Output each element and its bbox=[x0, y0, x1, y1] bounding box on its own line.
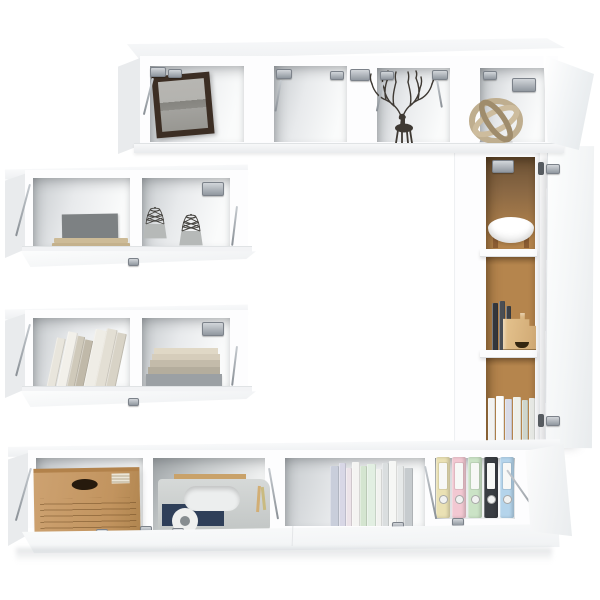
door-catch-icon bbox=[128, 398, 139, 406]
stacked-book bbox=[148, 367, 220, 374]
hinge-bracket-icon bbox=[492, 160, 514, 173]
wire-basket-ornament-icon bbox=[176, 209, 206, 247]
hinge-bracket-icon bbox=[276, 69, 292, 79]
hinge-bracket-icon bbox=[150, 67, 166, 77]
box-score-lines bbox=[40, 497, 137, 531]
hinge-bracket-icon bbox=[380, 71, 394, 80]
ring-binder bbox=[436, 457, 450, 518]
book-spine bbox=[352, 462, 360, 526]
cabinet-shelf bbox=[480, 249, 537, 257]
ring-binder bbox=[452, 457, 466, 518]
ring-binder bbox=[484, 457, 498, 518]
book-spine bbox=[496, 396, 504, 443]
hinge-icon bbox=[538, 162, 544, 175]
grey-toy-box bbox=[158, 474, 270, 532]
hinge-icon bbox=[538, 414, 544, 427]
book-spine bbox=[513, 397, 521, 443]
cabinet-shelf bbox=[480, 350, 537, 358]
book-spine bbox=[367, 464, 376, 526]
ring-binder bbox=[468, 457, 482, 518]
deer-antler-ornament-icon bbox=[358, 70, 446, 146]
hinge-icon bbox=[546, 164, 560, 174]
book-spine bbox=[488, 398, 495, 443]
shelf-shadow bbox=[486, 357, 535, 366]
floor-shadow bbox=[16, 548, 552, 562]
book-spine bbox=[529, 398, 535, 443]
book-spine bbox=[330, 466, 339, 526]
book-spine bbox=[397, 466, 404, 526]
cabinet-bottom-edge bbox=[134, 143, 564, 153]
toy-box-handle-hole bbox=[184, 486, 240, 511]
hinge-bracket-icon bbox=[350, 69, 370, 81]
product-photo-canvas bbox=[0, 0, 600, 600]
picture-frame bbox=[151, 72, 214, 139]
hinge-bracket-icon bbox=[512, 78, 536, 92]
tall-cabinet-open-door bbox=[545, 146, 594, 448]
book-spine bbox=[492, 303, 498, 350]
book-spine bbox=[360, 466, 367, 526]
box-label bbox=[112, 473, 130, 483]
ring-binder bbox=[500, 457, 514, 518]
wire-basket-ornament-icon bbox=[140, 196, 170, 246]
cabinet-left-face bbox=[118, 58, 140, 154]
leaning-books bbox=[46, 328, 136, 390]
hinge-bracket-icon bbox=[432, 70, 448, 80]
book-spine bbox=[339, 463, 346, 526]
hinge-bracket-icon bbox=[202, 182, 224, 196]
top-cabinet-open-door bbox=[540, 50, 594, 150]
pastel-book-row bbox=[330, 460, 422, 526]
hinge-bracket-icon bbox=[330, 71, 344, 80]
hinge-bracket-icon bbox=[168, 69, 182, 78]
hinge-bracket-icon bbox=[202, 322, 224, 336]
book-spine bbox=[522, 400, 528, 443]
wooden-sphere-ornament-icon bbox=[468, 98, 524, 146]
stacked-book bbox=[146, 374, 222, 386]
door-catch-icon bbox=[128, 258, 139, 266]
book-spine bbox=[404, 468, 413, 526]
cardboard-storage-box bbox=[33, 467, 140, 537]
book-spine bbox=[389, 461, 397, 526]
hinge-icon bbox=[546, 416, 560, 426]
ring-binder-row bbox=[436, 457, 514, 518]
stacked-book bbox=[150, 360, 220, 367]
wheel-hub bbox=[180, 516, 190, 526]
book-spine bbox=[505, 399, 512, 443]
book-spine bbox=[382, 463, 389, 526]
grey-book bbox=[62, 214, 118, 241]
hinge-bracket-icon bbox=[483, 71, 497, 80]
shelf-shadow bbox=[486, 256, 535, 265]
framed-photo bbox=[158, 78, 208, 132]
door-catch-icon bbox=[452, 518, 464, 526]
